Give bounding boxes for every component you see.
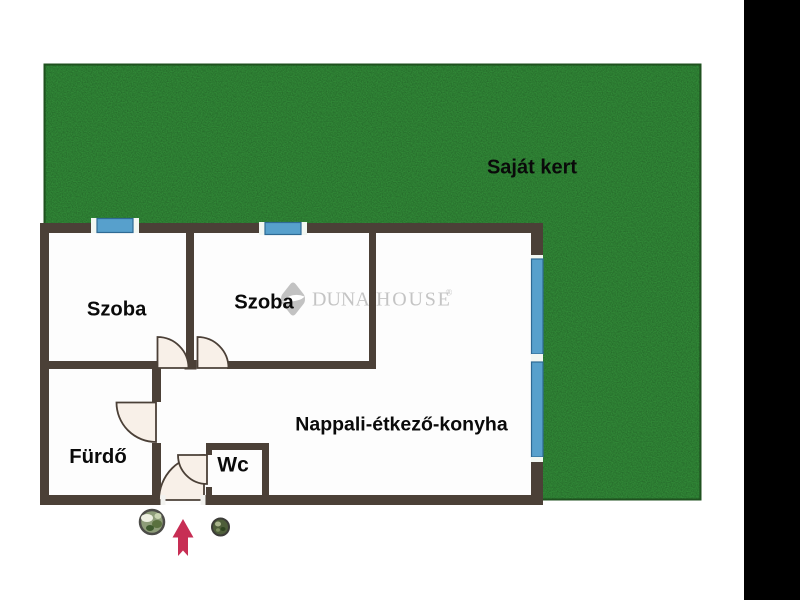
svg-text:Nappali-étkező-konyha: Nappali-étkező-konyha bbox=[295, 414, 508, 436]
svg-text:HOUSE: HOUSE bbox=[376, 289, 452, 311]
svg-text:DUNA: DUNA bbox=[312, 289, 370, 311]
svg-text:Fürdő: Fürdő bbox=[69, 446, 126, 468]
svg-text:®: ® bbox=[446, 288, 453, 298]
svg-text:Saját kert: Saját kert bbox=[487, 157, 577, 179]
svg-text:Wc: Wc bbox=[217, 454, 249, 477]
svg-text:Szoba: Szoba bbox=[87, 299, 147, 321]
svg-text:Szoba: Szoba bbox=[234, 292, 294, 314]
